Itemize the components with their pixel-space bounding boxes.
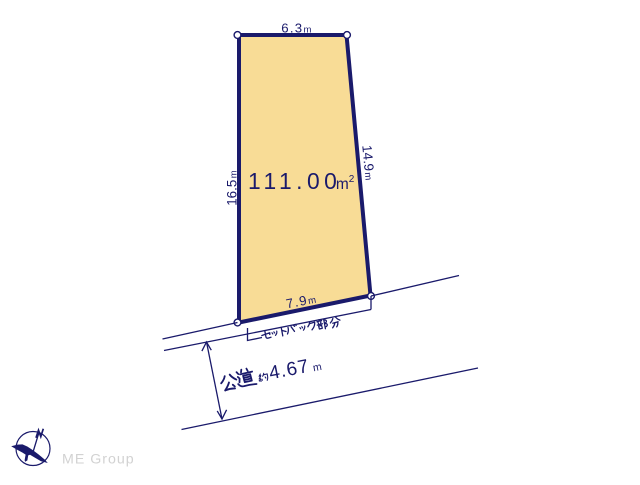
svg-text:m: m [312,361,323,374]
svg-text:16.5m: 16.5m [225,170,240,206]
svg-text:111.00m2: 111.00m2 [248,168,355,194]
svg-text:6.3m: 6.3m [281,20,311,35]
svg-text:ME Group: ME Group [62,452,135,468]
svg-text:4.67: 4.67 [267,356,311,384]
svg-text:14.9m: 14.9m [359,144,377,180]
